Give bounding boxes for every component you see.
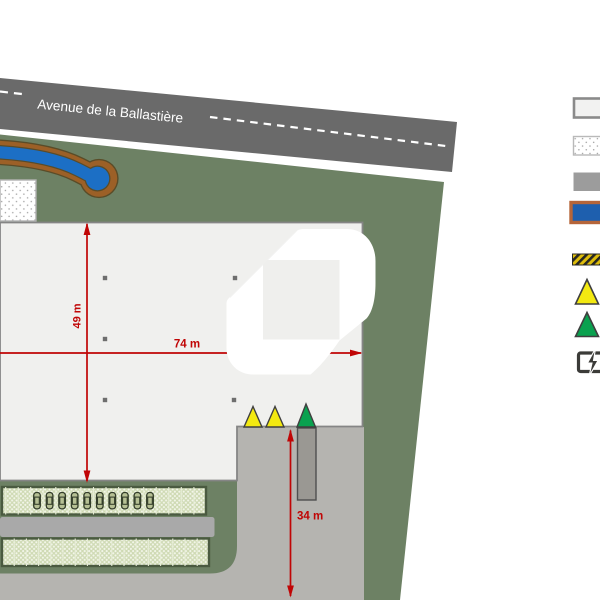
svg-text:34 m: 34 m: [297, 511, 323, 523]
svg-text:49 m: 49 m: [72, 303, 84, 328]
svg-text:74 m: 74 m: [174, 339, 200, 351]
